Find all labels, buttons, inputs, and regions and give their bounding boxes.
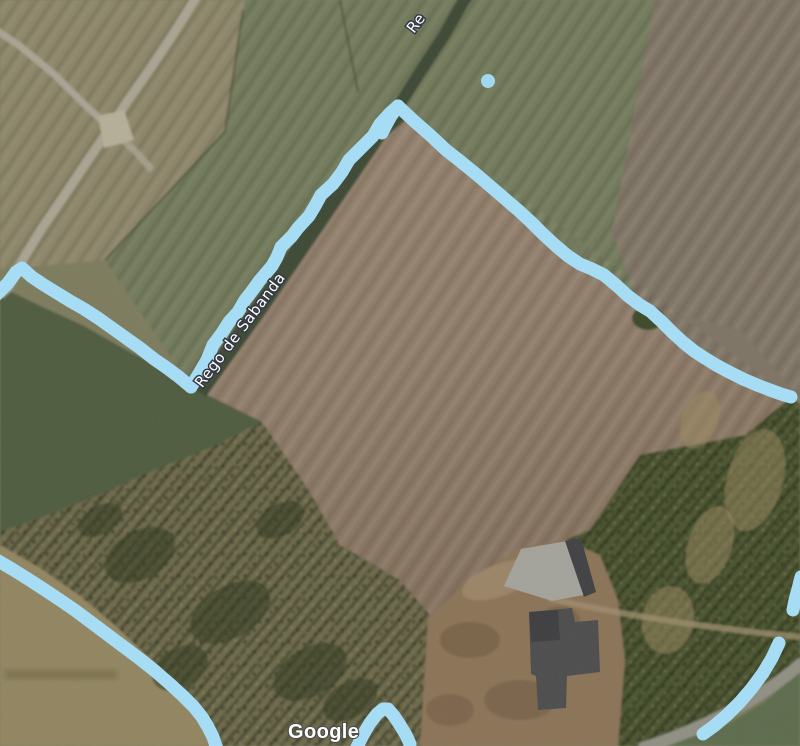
annotation-dot xyxy=(481,74,495,88)
satellite-map[interactable]: Rego de Sabanda Re Google xyxy=(0,0,800,746)
google-logo[interactable]: Google xyxy=(288,721,359,743)
annotation-right-edge-segment xyxy=(793,577,800,610)
map-canvas[interactable]: Rego de Sabanda Re Google xyxy=(0,0,800,746)
